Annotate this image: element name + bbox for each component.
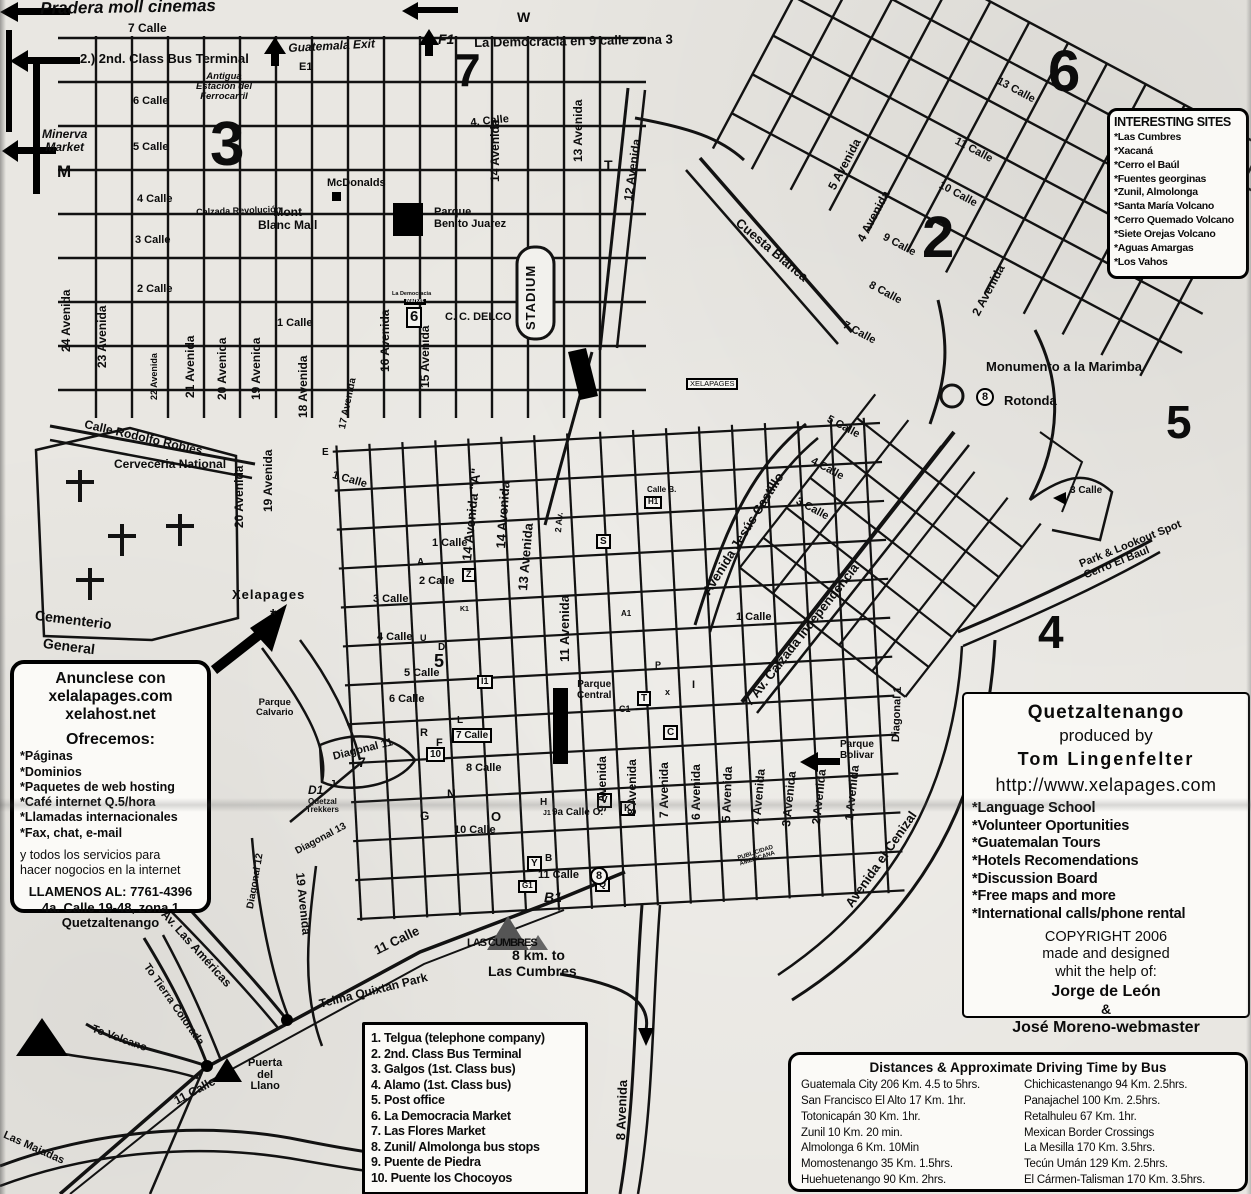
producer-title: Quetzaltenango [972, 702, 1240, 724]
feature-item: *International calls/phone rental [972, 906, 1240, 924]
map-label: 19 Avenida [262, 450, 275, 512]
ad-offer-item: *Café internet Q.5/hora [20, 795, 201, 810]
legend-item: 3. Galgos (1st. Class bus) [371, 1062, 579, 1078]
map-label: B1 [544, 890, 562, 905]
ad-offer-item: *Paquetes de web hosting [20, 780, 201, 795]
map-label: 13 Avenida [572, 100, 585, 162]
map-label: Pradera moll cinemas [40, 0, 216, 18]
map-label: 11 Avenida [558, 595, 572, 662]
map-label: 7 Calle [128, 22, 167, 35]
site-item: *Aguas Amargas [1114, 242, 1242, 256]
feature-item: *Language School [972, 800, 1240, 818]
map-label: 1 Calle [331, 470, 368, 491]
map-label: La Democracia [392, 292, 431, 298]
ad-tagline: y todos los servicios para hacer nogocio… [20, 848, 201, 878]
legend-item: 5. Post office [371, 1093, 579, 1109]
map-label: 15 Avenida [419, 326, 432, 388]
map-label: Avenida el Cenizal [843, 809, 919, 910]
map-label: 6 [1048, 42, 1080, 103]
map-label: Parque Central [577, 680, 611, 701]
map-label: 21 Avenida [184, 336, 197, 398]
credit-name-2: José Moreno-webmaster [972, 1019, 1240, 1037]
map-label: 23 Avenida [96, 306, 109, 368]
distance-item: Huehuetenango 90 Km. 2hrs. [801, 1173, 1012, 1189]
feature-item: *Hotels Recomendations [972, 853, 1240, 871]
distance-item: Mexican Border Crossings [1024, 1126, 1235, 1142]
map-label: General [42, 636, 96, 657]
map-label: 13 Calle [995, 76, 1037, 106]
map-label: O [491, 810, 501, 824]
interesting-sites-box: INTERESTING SITES *Las Cumbres*Xacaná*Ce… [1107, 108, 1249, 279]
producer-credits-box: Quetzaltenango produced by Tom Lingenfel… [962, 692, 1250, 1018]
map-label: Z [462, 568, 476, 582]
distances-columns: Guatemala City 206 Km. 4.5 to 5hrs.San F… [801, 1078, 1235, 1189]
map-label: C1 [619, 705, 631, 714]
map-label: 11 Calle [538, 870, 579, 882]
map-label: 2 [922, 208, 954, 269]
map-label: McDonalds [327, 178, 386, 190]
map-label: U [420, 634, 427, 643]
map-label: 1 Calle [277, 318, 312, 330]
map-label: 11 Calle [172, 1075, 217, 1107]
map-label: B [545, 854, 552, 865]
site-item: *Cerro el Baúl [1114, 159, 1242, 173]
site-item: *Cerro Quemado Volcano [1114, 214, 1242, 228]
feature-item: *Guatemalan Tours [972, 835, 1240, 853]
map-label: 1 Avenida [843, 764, 861, 821]
map-label: Minerva Market [42, 128, 87, 153]
map-label: E1 [299, 62, 312, 74]
map-label: C. C. DELCO [445, 312, 512, 324]
map-label: R [420, 728, 428, 740]
map-key-box: 1. Telgua (telephone company)2. 2nd. Cla… [362, 1022, 588, 1194]
copyright-line: whit the help of: [972, 964, 1240, 981]
map-label: * [270, 608, 276, 625]
map-label: D1 [308, 784, 323, 797]
feature-item: *Volunteer Oportunities [972, 818, 1240, 836]
map-label: T [604, 158, 613, 173]
ad-offers-list: *Páginas*Dominios*Paquetes de web hostin… [20, 749, 201, 841]
map-label: 5 Avenida [720, 766, 735, 822]
map-label: 7 [455, 46, 481, 94]
map-label: Diagonal 1 [891, 686, 904, 742]
copyright-block: COPYRIGHT 2006made and designedwhit the … [972, 929, 1240, 981]
map-label: Quetzal Trekkers [306, 798, 339, 815]
map-label: Mont Blanc Mall [258, 206, 317, 231]
map-label: 10 [426, 747, 445, 762]
produced-by-label: produced by [972, 726, 1240, 746]
site-item: *Santa María Volcano [1114, 200, 1242, 214]
distance-item: Tecún Umán 129 Km. 2.5hrs. [1024, 1157, 1235, 1173]
feature-item: *Free maps and more [972, 888, 1240, 906]
map-label: 7 [358, 755, 366, 770]
map-label: Cuesta Blanca [733, 216, 810, 284]
map-label: T [637, 691, 651, 706]
map-label: N [447, 788, 456, 801]
map-label: 18 Avenida [297, 356, 310, 418]
ad-offer-item: *Páginas [20, 749, 201, 764]
xelapages-ad-box: Anunclese con xelalapages.com xelahost.n… [10, 660, 211, 913]
map-label: 24 Avenida [60, 290, 73, 352]
map-label: Antigua Estación del Ferrocarril [196, 72, 252, 102]
map-label: 2 Avenida [970, 263, 1007, 318]
legend-item: 8. Zunil/ Almolonga bus stops [371, 1140, 579, 1156]
map-label: 1 Calle [736, 612, 771, 624]
map-label: Guatemala Exit [288, 37, 375, 54]
map-label: 6 Calle [133, 96, 168, 108]
map-label: P [655, 661, 661, 670]
site-item: *Las Cumbres [1114, 131, 1242, 145]
map-label: Parque Calvario [256, 698, 294, 718]
credit-name-1: Jorge de León [972, 983, 1240, 1001]
legend-item: 10. Puente los Chocoyos [371, 1171, 579, 1187]
map-label: 13 Avenida [516, 523, 535, 592]
map-label: I [692, 680, 695, 692]
distance-item: Momostenango 35 Km. 1.5hrs. [801, 1157, 1012, 1173]
map-label: x [665, 688, 670, 697]
map-label: 4 [1038, 608, 1064, 656]
map-label: 6 Avenida [690, 764, 703, 820]
map-label: Monumento a la Marimba [986, 360, 1142, 374]
map-label: A [417, 558, 424, 569]
legend-item: 9. Puente de Piedra [371, 1155, 579, 1171]
map-label: Calle B. [647, 486, 676, 494]
map-label: 9 Calle [881, 232, 918, 259]
ad-title: Anunclese con xelalapages.com xelahost.n… [20, 670, 201, 723]
legend-list: 1. Telgua (telephone company)2. 2nd. Cla… [371, 1031, 579, 1186]
ad-offer-item: *Dominios [20, 765, 201, 780]
distance-item: Retalhuleu 67 Km. 1hr. [1024, 1110, 1235, 1126]
ad-offer-title: Ofrecemos: [20, 731, 201, 749]
map-label: 19 Avenida [293, 872, 312, 935]
map-label: 8 Calle [867, 280, 904, 307]
map-label: K1 [460, 606, 469, 613]
credit-ampersand: & [972, 1001, 1240, 1017]
map-label: Cerveceria National [114, 458, 226, 471]
map-label: 7 Avenida [658, 762, 671, 818]
map-label: STADIUM [524, 265, 538, 330]
map-label: 4 Calle [377, 632, 412, 644]
map-label: 5 Calle [825, 414, 862, 441]
map-label: 9a Calle O. [552, 808, 603, 819]
map-label: 8 Avenida [626, 759, 639, 815]
map-label: 7 Calle [841, 320, 878, 347]
distance-item: La Mesilla 170 Km. 3.5hrs. [1024, 1141, 1235, 1157]
map-label: 3 Calle [1070, 486, 1102, 497]
map-label: Telma Quixtan Park [318, 971, 429, 1010]
map-label: Parque Bolivar [840, 740, 874, 761]
map-label: 11 Calle [953, 136, 995, 165]
map-label: 14 Avenida "A" [460, 467, 483, 561]
distance-item: Panajachel 100 Km. 2.5hrs. [1024, 1094, 1235, 1110]
site-item: *Siete Orejas Volcano [1114, 228, 1242, 242]
map-label: 20 Avenida [233, 466, 246, 528]
map-label: 4 Avenida [750, 768, 767, 825]
map-label: 20 Avenida [216, 338, 229, 400]
map-label: 17 Avenida [338, 377, 359, 430]
map-label: 6 Calle [389, 694, 424, 706]
interesting-sites-list: *Las Cumbres*Xacaná*Cerro el Baúl*Fuente… [1114, 131, 1242, 270]
map-label: H [540, 798, 547, 809]
map-label: Xelapages [232, 588, 305, 602]
map-label: Cementerio [34, 608, 112, 632]
map-label: C [663, 725, 678, 740]
map-label: 8 [976, 388, 994, 406]
map-label: 16 Avenida [379, 310, 392, 372]
map-label: Park & Lookout Spot Cerro El Baul [1078, 519, 1188, 581]
site-item: *Fuentes georginas [1114, 173, 1242, 187]
map-label: J1 [543, 810, 551, 817]
map-label: 4 Calle [137, 194, 172, 206]
site-item: *Los Vahos [1114, 256, 1242, 270]
distance-item: Almolonga 6 Km. 10Min [801, 1141, 1012, 1157]
map-label: 2.) 2nd. Class Bus Terminal [80, 52, 249, 66]
map-label: I1 [477, 675, 493, 689]
map-label: 2 Calle [419, 576, 454, 588]
map-label: 6 [406, 307, 422, 328]
map-label: Las Majadas [1, 1130, 65, 1167]
distance-item: Guatemala City 206 Km. 4.5 to 5hrs. [801, 1078, 1012, 1094]
map-label: 7 Av. Calzada Independencia [742, 561, 861, 708]
legend-item: 7. Las Flores Market [371, 1124, 579, 1140]
distances-col-2: Chichicastenango 94 Km. 2.5hrs.Panajache… [1024, 1078, 1235, 1189]
map-label: 10 Calle [454, 825, 496, 837]
distance-item: San Francisco El Alto 17 Km. 1hr. [801, 1094, 1012, 1110]
map-label: 2 Avenida [810, 768, 828, 825]
map-label: 5 Calle [133, 142, 168, 154]
map-label: Parque Benito Juarez [434, 207, 506, 230]
ad-contact: LLAMENOS AL: 7761-4396 4a. Calle 19-48, … [20, 884, 201, 931]
map-label: Diagonal 12 [246, 853, 266, 910]
map-label: To Volcano [90, 1024, 148, 1055]
map-label: 5 [1166, 398, 1192, 446]
copyright-line: COPYRIGHT 2006 [972, 929, 1240, 946]
producer-features-list: *Language School*Volunteer Oportunities*… [972, 800, 1240, 924]
interesting-sites-title: INTERESTING SITES [1114, 115, 1242, 129]
map-label: 7 Calle [452, 728, 492, 743]
map-label: Las Cumbres [488, 964, 577, 979]
map-label: 8 Calle [466, 763, 501, 775]
map-label: G [420, 810, 429, 823]
map-label: A1 [621, 610, 631, 618]
map-label: 8 km. to [512, 948, 565, 963]
map-label: Rotonda [1004, 394, 1057, 408]
map-label: 8 Avenida [614, 1080, 630, 1141]
map-label: H1 [644, 496, 662, 509]
map-label: Avenida Jesús Castillo [700, 470, 786, 597]
map-label: Diagonal 13 [294, 822, 348, 858]
map-label: E [322, 448, 329, 459]
map-label: 22 Avenida [150, 353, 159, 400]
map-label: 5 Avenida [826, 137, 863, 192]
producer-url: http://www.xelapages.com [972, 775, 1240, 796]
map-label: 12 Avenida [622, 138, 643, 202]
map-label: 2 Calle [137, 284, 172, 296]
distance-item: Totonicapán 30 Km. 1hr. [801, 1110, 1012, 1126]
map-label: L [457, 716, 463, 727]
legend-item: 4. Alamo (1st. Class bus) [371, 1078, 579, 1094]
map-label: La Democracia en 9 calle zona 3 [474, 33, 673, 50]
copyright-line: made and designed [972, 946, 1240, 963]
map-label: Puerta del Llano [248, 1058, 282, 1093]
distances-col-1: Guatemala City 206 Km. 4.5 to 5hrs.San F… [801, 1078, 1012, 1189]
map-label: 9 Avenida [596, 756, 609, 812]
distance-item: Zunil 10 Km. 20 min. [801, 1126, 1012, 1142]
legend-item: 6. La Democracia Market [371, 1109, 579, 1125]
map-label: 3 Calle [794, 496, 831, 523]
map-label: Market [404, 299, 426, 305]
distances-title: Distances & Approximate Driving Time by … [801, 1060, 1235, 1075]
map-label: 14 Avenida [489, 120, 502, 182]
map-label: 11 Calle [372, 924, 422, 957]
map-label: XELAPAGES [686, 378, 738, 390]
distance-item: Chichicastenango 94 Km. 2.5hrs. [1024, 1078, 1235, 1094]
ad-offer-item: *Fax, chat, e-mail [20, 826, 201, 841]
map-label: M [57, 163, 71, 181]
scanned-city-map: Pradera moll cinemas7 Calle2.) 2nd. Clas… [0, 0, 1251, 1194]
producer-author: Tom Lingenfelter [972, 749, 1240, 770]
map-label: 3 Calle [373, 594, 408, 606]
map-label: J [330, 780, 336, 791]
map-label: F1 [438, 32, 454, 47]
map-label: 3 [210, 112, 244, 177]
map-label: 5 [434, 652, 444, 671]
site-item: *Xacaná [1114, 145, 1242, 159]
ad-offer-item: *Llamadas internacionales [20, 810, 201, 825]
map-label: 3 Calle [135, 235, 170, 247]
map-label: S [596, 534, 611, 549]
map-label: 3 Avenida [780, 770, 798, 827]
map-label: PUBLICIDAD AMERICANA [737, 845, 776, 868]
map-label: G1 [518, 880, 537, 893]
map-label: 2 Av. [554, 512, 565, 533]
feature-item: *Discussion Board [972, 871, 1240, 889]
map-label: 14 Avenida [494, 480, 512, 548]
map-label: To Tierra Colorada [141, 962, 206, 1048]
distances-box: Distances & Approximate Driving Time by … [788, 1052, 1248, 1192]
legend-item: 1. Telgua (telephone company) [371, 1031, 579, 1047]
distance-item: El Cármen-Talisman 170 Km. 3.5hrs. [1024, 1173, 1235, 1189]
map-label: Calle Rodolfo Robles [83, 418, 203, 457]
map-label: 4 Calle [809, 456, 846, 483]
legend-item: 2. 2nd. Class Bus Terminal [371, 1047, 579, 1063]
map-label: W [517, 10, 530, 25]
site-item: *Zunil, Almolonga [1114, 186, 1242, 200]
map-label: 19 Avenida [250, 338, 263, 400]
